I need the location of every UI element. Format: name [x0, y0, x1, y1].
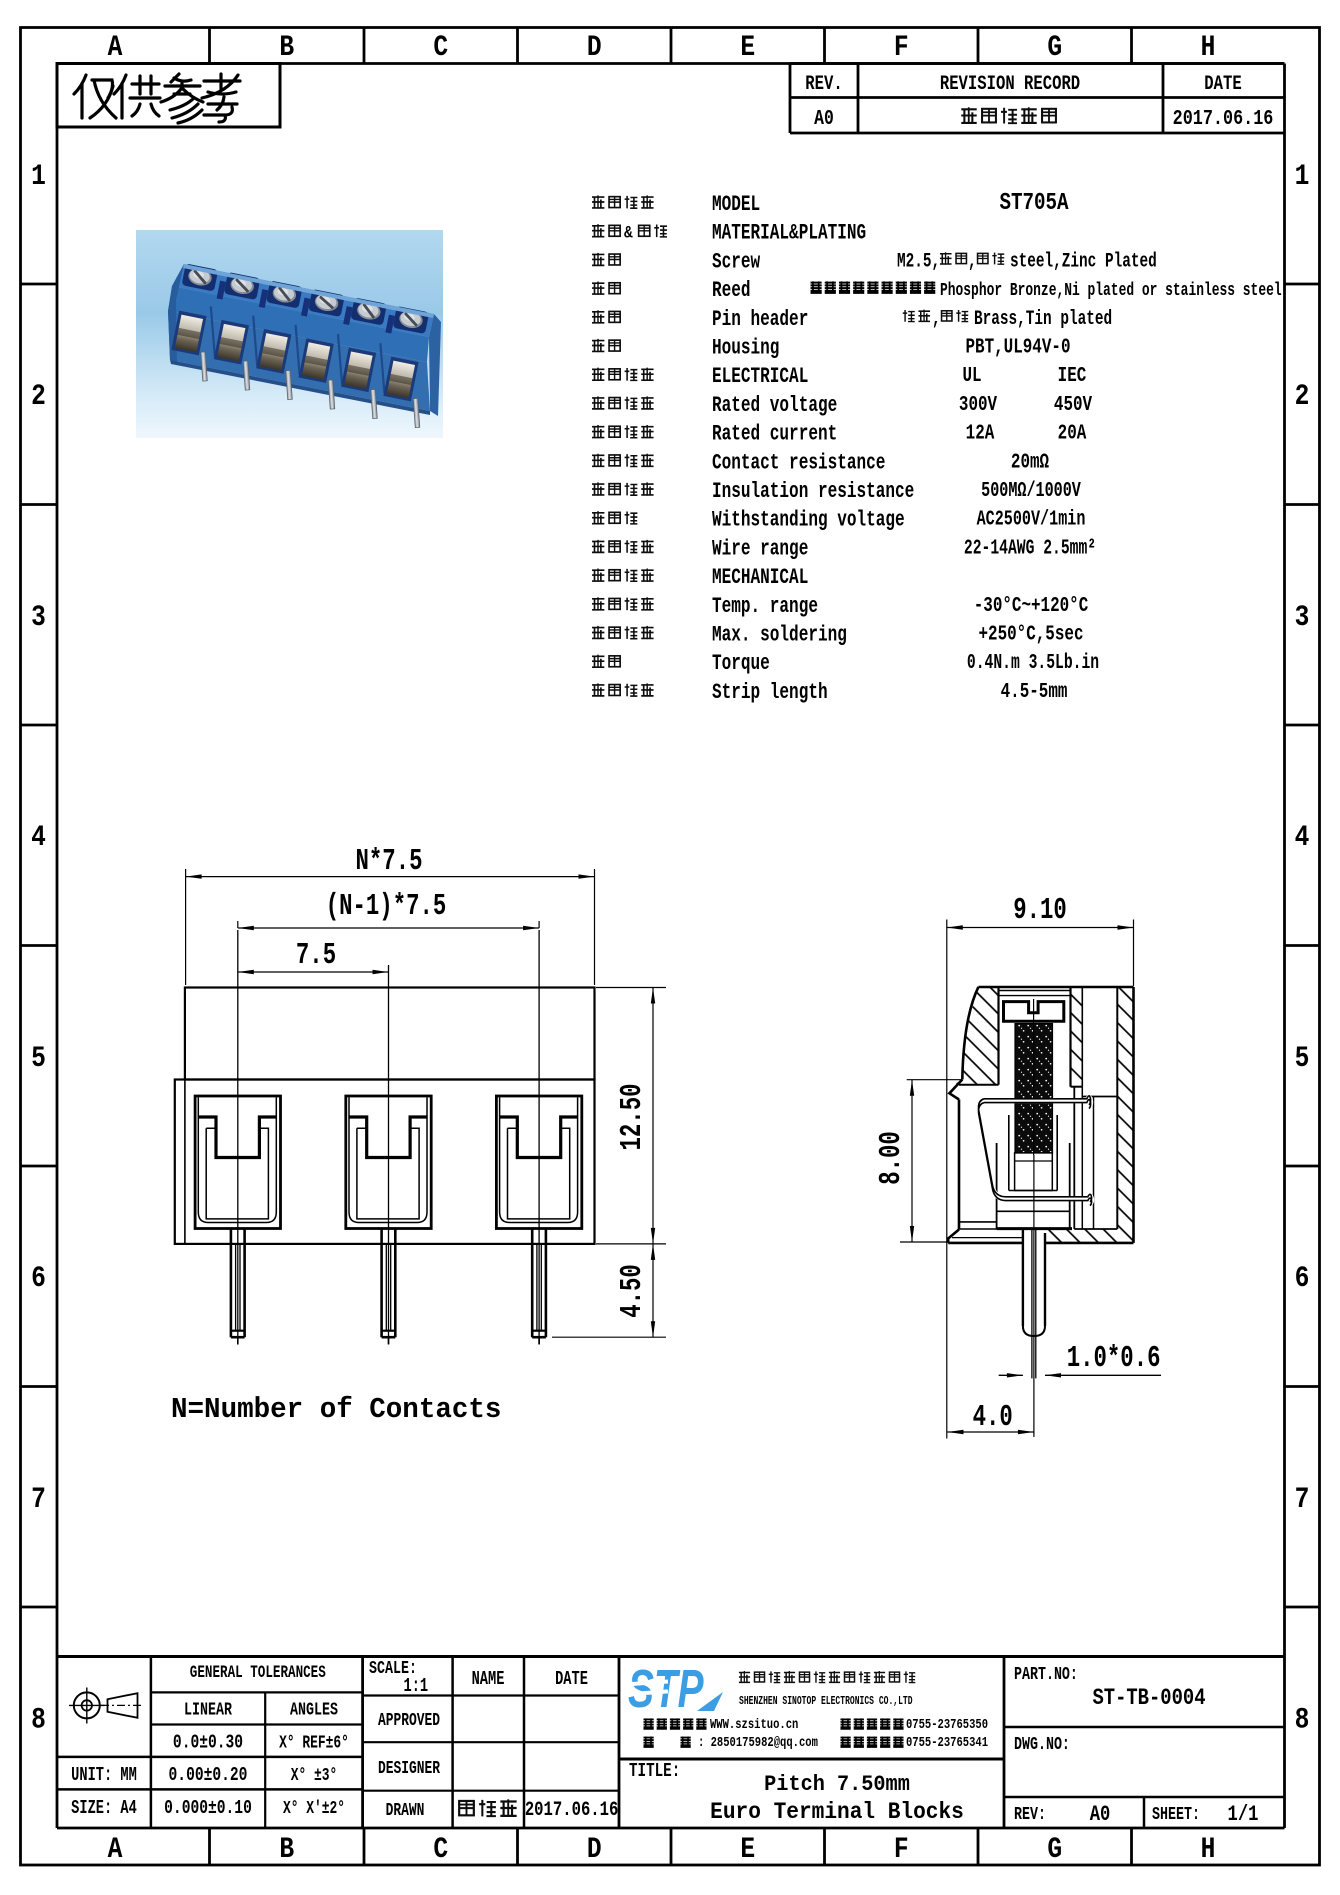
- svg-text:GENERAL TOLERANCES: GENERAL TOLERANCES: [190, 1662, 326, 1683]
- svg-text:1/1: 1/1: [1228, 1802, 1259, 1827]
- svg-text:Reed: Reed: [712, 278, 751, 303]
- svg-text:12.50: 12.50: [616, 1084, 650, 1151]
- svg-text:N=Number of Contacts: N=Number of Contacts: [171, 1393, 501, 1426]
- svg-text:B: B: [279, 1833, 294, 1867]
- svg-text:0.4N.m 3.5Lb.in: 0.4N.m 3.5Lb.in: [967, 652, 1099, 675]
- svg-text:,: ,: [968, 250, 977, 273]
- svg-text:REV.: REV.: [805, 73, 842, 95]
- svg-text:4.5-5mm: 4.5-5mm: [1001, 679, 1068, 704]
- svg-text:SHENZHEN SINOTOP ELECTRONICS C: SHENZHEN SINOTOP ELECTRONICS CO.,LTD: [739, 1695, 913, 1708]
- svg-text:4: 4: [31, 821, 46, 855]
- svg-text:DWG.NO:: DWG.NO:: [1014, 1734, 1070, 1755]
- svg-text:0.0±0.30: 0.0±0.30: [173, 1733, 243, 1754]
- svg-text:0755-23765341: 0755-23765341: [906, 1735, 988, 1751]
- svg-text:DATE: DATE: [555, 1668, 588, 1690]
- svg-text:REV:: REV:: [1014, 1804, 1046, 1825]
- svg-text:Wire range: Wire range: [712, 536, 808, 561]
- svg-text:8.00: 8.00: [875, 1131, 909, 1185]
- svg-text:UNIT: MM: UNIT: MM: [71, 1764, 137, 1786]
- svg-text:Housing: Housing: [712, 335, 779, 360]
- svg-text:WWW.szsituo.cn: WWW.szsituo.cn: [710, 1717, 798, 1733]
- svg-text:A0: A0: [1090, 1802, 1111, 1827]
- svg-text:STP: STP: [628, 1658, 704, 1719]
- svg-text:B: B: [279, 31, 294, 65]
- svg-text:N*7.5: N*7.5: [356, 845, 423, 879]
- svg-text:C: C: [433, 1833, 448, 1867]
- svg-text:(N-1)*7.5: (N-1)*7.5: [326, 890, 447, 924]
- svg-text:300V: 300V: [959, 392, 998, 417]
- svg-text:Phosphor Bronze,Ni plated or s: Phosphor Bronze,Ni plated or stainless s…: [940, 280, 1282, 301]
- svg-text:M2.5,: M2.5,: [897, 250, 940, 273]
- svg-text:X° REF±6°: X° REF±6°: [279, 1732, 349, 1753]
- svg-text:LINEAR: LINEAR: [184, 1700, 232, 1721]
- svg-text:PBT,UL94V-0: PBT,UL94V-0: [966, 334, 1071, 359]
- svg-text:8: 8: [1295, 1703, 1310, 1737]
- svg-text:SIZE: A4: SIZE: A4: [71, 1797, 137, 1819]
- svg-text:MATERIAL&PLATING: MATERIAL&PLATING: [712, 220, 866, 245]
- svg-text:2017.06.16: 2017.06.16: [1173, 106, 1274, 130]
- svg-text:7: 7: [31, 1483, 46, 1517]
- svg-text:20mΩ: 20mΩ: [1011, 449, 1049, 474]
- svg-text:1: 1: [31, 160, 46, 194]
- svg-text:ANGLES: ANGLES: [290, 1700, 338, 1721]
- svg-text:Max. soldering: Max. soldering: [712, 622, 847, 647]
- svg-text:SHEET:: SHEET:: [1152, 1804, 1200, 1825]
- svg-text:H: H: [1201, 31, 1216, 65]
- svg-text:7: 7: [1295, 1483, 1310, 1517]
- svg-text:0755-23765350: 0755-23765350: [906, 1717, 988, 1733]
- svg-text:steel,Zinc Plated: steel,Zinc Plated: [1010, 250, 1157, 273]
- svg-text:DATE: DATE: [1204, 73, 1242, 95]
- svg-text:2: 2: [1295, 380, 1310, 414]
- svg-text:Withstanding voltage: Withstanding voltage: [712, 507, 905, 532]
- svg-text:12A: 12A: [966, 420, 995, 445]
- svg-text:A: A: [108, 31, 123, 65]
- svg-text:2017.06.16: 2017.06.16: [525, 1799, 619, 1821]
- svg-text:ST-TB-0004: ST-TB-0004: [1092, 1685, 1205, 1711]
- svg-text:E: E: [740, 31, 755, 65]
- svg-text:6: 6: [1295, 1262, 1310, 1296]
- svg-text:500MΩ/1000V: 500MΩ/1000V: [981, 480, 1081, 503]
- svg-text:IEC: IEC: [1058, 363, 1087, 388]
- svg-text:Rated current: Rated current: [712, 421, 837, 446]
- svg-text:MECHANICAL: MECHANICAL: [712, 565, 808, 590]
- svg-text:X° X'±2°: X° X'±2°: [283, 1798, 345, 1819]
- svg-text:6: 6: [31, 1262, 46, 1296]
- svg-text:22-14AWG 2.5mm²: 22-14AWG 2.5mm²: [964, 537, 1096, 560]
- svg-text:F: F: [894, 31, 909, 65]
- svg-text:-30°C~+120°C: -30°C~+120°C: [974, 593, 1089, 618]
- svg-text:F: F: [894, 1833, 909, 1867]
- svg-text:Strip length: Strip length: [712, 680, 828, 705]
- svg-text:G: G: [1047, 1833, 1062, 1867]
- svg-text:A: A: [108, 1833, 123, 1867]
- svg-text:4: 4: [1295, 821, 1310, 855]
- svg-text:1: 1: [1295, 160, 1310, 194]
- svg-text:C: C: [433, 31, 448, 65]
- svg-text:4.50: 4.50: [616, 1264, 650, 1318]
- svg-text:Pin header: Pin header: [712, 307, 808, 332]
- svg-text:1:1: 1:1: [403, 1675, 428, 1697]
- svg-text:ELECTRICAL: ELECTRICAL: [712, 364, 808, 389]
- svg-text:H: H: [1201, 1833, 1216, 1867]
- svg-text:ST705A: ST705A: [999, 189, 1069, 217]
- svg-text:: 2850175982@qq.com: : 2850175982@qq.com: [698, 1735, 818, 1751]
- svg-text:,: ,: [932, 308, 941, 331]
- svg-text:DESIGNER: DESIGNER: [378, 1758, 440, 1779]
- svg-text:9.10: 9.10: [1013, 894, 1067, 928]
- svg-text:&: &: [624, 222, 633, 243]
- svg-text:20A: 20A: [1058, 420, 1087, 445]
- svg-text:Temp. range: Temp. range: [712, 594, 818, 619]
- svg-text:4.0: 4.0: [973, 1401, 1013, 1435]
- svg-text:Rated voltage: Rated voltage: [712, 393, 837, 418]
- svg-text:DRAWN: DRAWN: [386, 1800, 425, 1821]
- svg-text:MODEL: MODEL: [712, 192, 760, 217]
- svg-text:D: D: [587, 31, 602, 65]
- svg-text:3: 3: [1295, 601, 1310, 635]
- svg-text:Contact resistance: Contact resistance: [712, 450, 885, 475]
- svg-text:X° ±3°: X° ±3°: [291, 1765, 338, 1786]
- svg-text:Screw: Screw: [712, 249, 761, 274]
- svg-text:NAME: NAME: [472, 1668, 505, 1690]
- svg-text:Torque: Torque: [712, 651, 770, 676]
- svg-text:8: 8: [31, 1703, 46, 1737]
- svg-text:0.000±0.10: 0.000±0.10: [164, 1798, 252, 1819]
- svg-text:0.00±0.20: 0.00±0.20: [169, 1765, 248, 1786]
- svg-text:APPROVED: APPROVED: [378, 1710, 440, 1731]
- svg-text:AC2500V/1min: AC2500V/1min: [977, 509, 1086, 532]
- svg-text:REVISION RECORD: REVISION RECORD: [940, 73, 1081, 95]
- svg-text:7.5: 7.5: [296, 939, 336, 973]
- svg-text:3: 3: [31, 601, 46, 635]
- svg-text:Insulation resistance: Insulation resistance: [712, 479, 914, 504]
- svg-text:G: G: [1047, 31, 1062, 65]
- svg-text:Pitch 7.50mm: Pitch 7.50mm: [764, 1772, 910, 1797]
- svg-text:UL: UL: [962, 363, 981, 388]
- svg-text:5: 5: [1295, 1042, 1310, 1076]
- svg-text:TITLE:: TITLE:: [629, 1761, 680, 1782]
- svg-text:PART.NO:: PART.NO:: [1014, 1664, 1078, 1685]
- svg-text:2: 2: [31, 380, 46, 414]
- svg-text:A0: A0: [814, 106, 834, 131]
- svg-text:+250°C,5sec: +250°C,5sec: [979, 621, 1084, 646]
- svg-text:D: D: [587, 1833, 602, 1867]
- svg-text:1.0*0.6: 1.0*0.6: [1067, 1342, 1161, 1376]
- svg-text:450V: 450V: [1054, 392, 1093, 417]
- svg-text:Brass,Tin plated: Brass,Tin plated: [974, 308, 1112, 331]
- svg-text:5: 5: [31, 1042, 46, 1076]
- svg-text:E: E: [740, 1833, 755, 1867]
- svg-text:Euro Terminal Blocks: Euro Terminal Blocks: [710, 1799, 964, 1825]
